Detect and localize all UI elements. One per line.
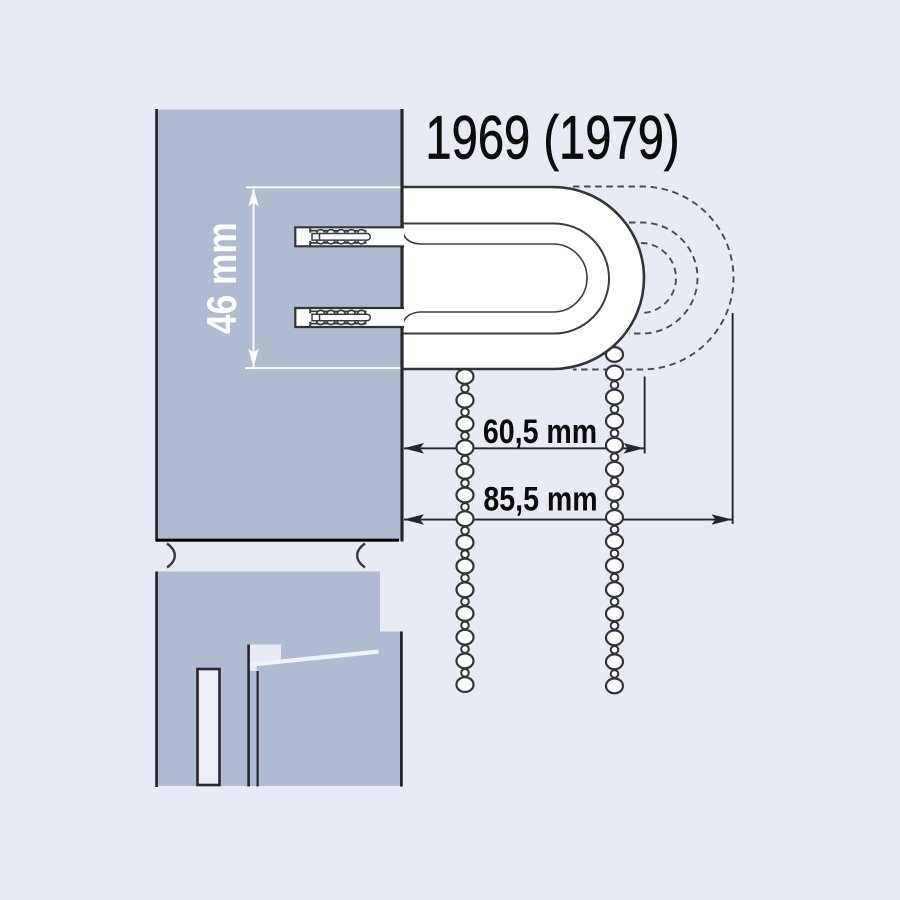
- svg-text:1969 (1979): 1969 (1979): [425, 104, 679, 172]
- svg-text:85,5 mm: 85,5 mm: [483, 480, 597, 518]
- svg-text:46 mm: 46 mm: [199, 222, 246, 334]
- svg-text:60,5 mm: 60,5 mm: [483, 413, 597, 451]
